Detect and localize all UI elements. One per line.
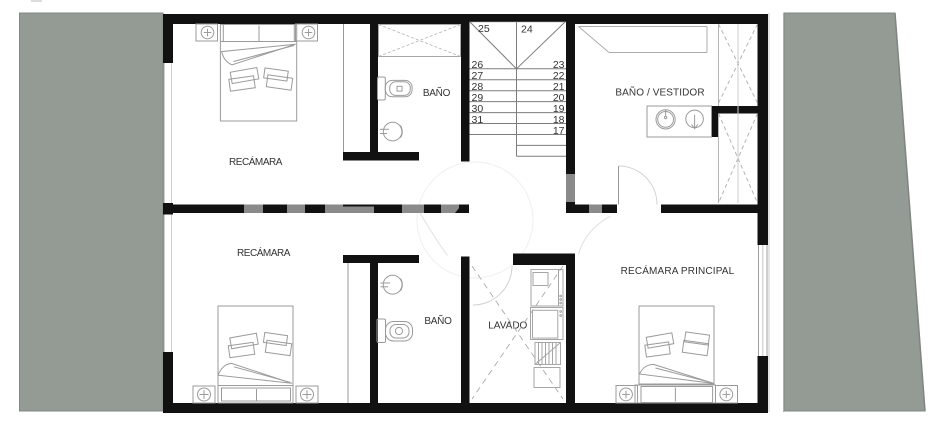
svg-text:BAÑO: BAÑO bbox=[424, 314, 452, 327]
svg-text:24: 24 bbox=[521, 24, 533, 36]
svg-text:25: 25 bbox=[478, 23, 490, 35]
svg-text:17: 17 bbox=[553, 125, 565, 137]
svg-text:BAÑO: BAÑO bbox=[423, 86, 451, 99]
svg-text:LAVADO: LAVADO bbox=[488, 320, 527, 331]
svg-text:31: 31 bbox=[472, 114, 484, 126]
svg-text:BAÑO / VESTIDOR: BAÑO / VESTIDOR bbox=[615, 86, 704, 99]
svg-text:RECÁMARA PRINCIPAL: RECÁMARA PRINCIPAL bbox=[621, 264, 735, 277]
svg-text:RECÁMARA: RECÁMARA bbox=[229, 155, 283, 168]
svg-text:RECÁMARA: RECÁMARA bbox=[237, 246, 291, 259]
